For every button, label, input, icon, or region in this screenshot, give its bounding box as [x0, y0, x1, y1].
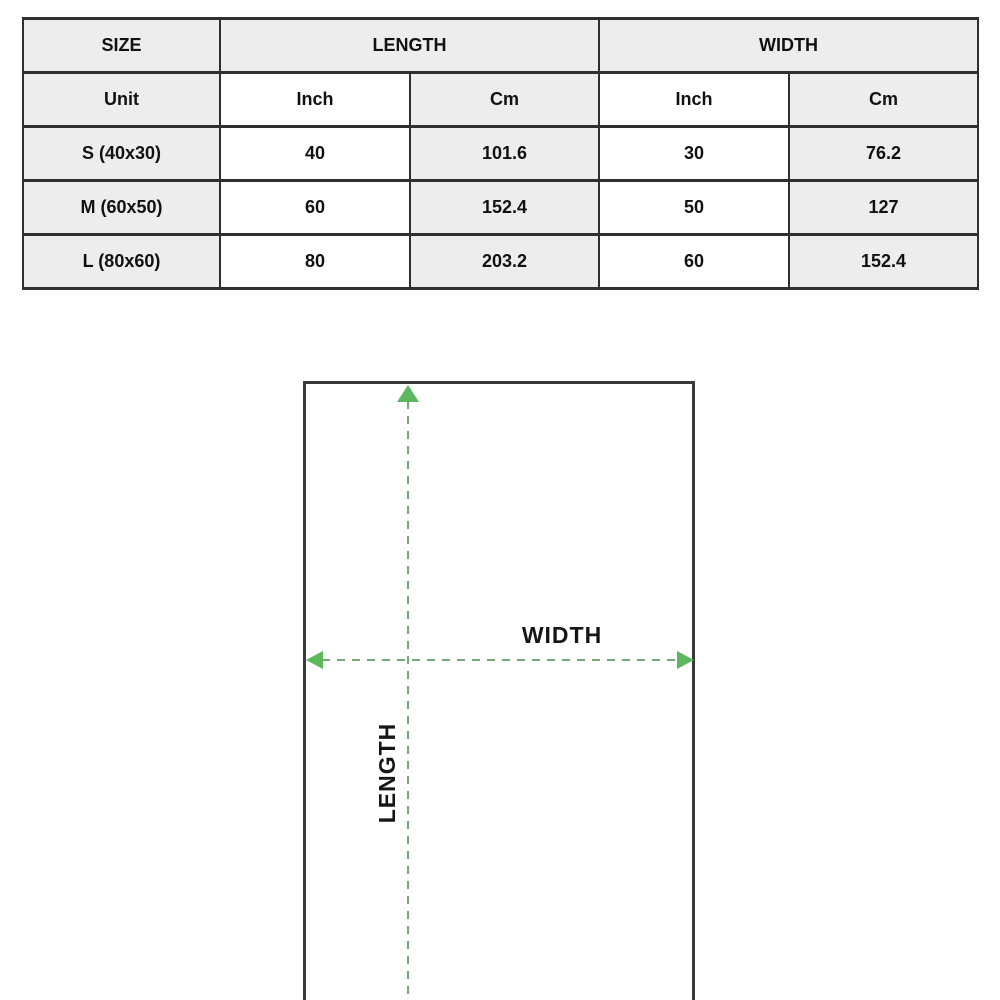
- length-cm-cell: 152.4: [410, 181, 599, 235]
- size-chart-page: SIZE LENGTH WIDTH Unit Inch Cm Inch Cm S…: [0, 0, 1000, 1000]
- size-cell: S (40x30): [23, 127, 220, 181]
- unit-row-label: Unit: [23, 73, 220, 127]
- width-dashed-line: [322, 659, 678, 661]
- length-cm-cell: 203.2: [410, 235, 599, 289]
- arrow-right-icon: [677, 651, 694, 669]
- table-unit-row: Unit Inch Cm Inch Cm: [23, 73, 978, 127]
- size-chart-table: SIZE LENGTH WIDTH Unit Inch Cm Inch Cm S…: [22, 17, 979, 290]
- size-cell: M (60x50): [23, 181, 220, 235]
- unit-width-inch: Inch: [599, 73, 789, 127]
- size-cell: L (80x60): [23, 235, 220, 289]
- length-inch-cell: 40: [220, 127, 410, 181]
- width-inch-cell: 50: [599, 181, 789, 235]
- length-inch-cell: 80: [220, 235, 410, 289]
- product-outline-rect: [303, 381, 695, 1000]
- arrow-left-icon: [306, 651, 323, 669]
- width-cm-cell: 76.2: [789, 127, 978, 181]
- header-length: LENGTH: [220, 19, 599, 73]
- length-dashed-line: [407, 401, 409, 1000]
- width-label: WIDTH: [482, 622, 642, 649]
- length-inch-cell: 60: [220, 181, 410, 235]
- unit-length-inch: Inch: [220, 73, 410, 127]
- width-cm-cell: 127: [789, 181, 978, 235]
- width-cm-cell: 152.4: [789, 235, 978, 289]
- unit-width-cm: Cm: [789, 73, 978, 127]
- length-label: LENGTH: [373, 703, 401, 843]
- table-row: S (40x30) 40 101.6 30 76.2: [23, 127, 978, 181]
- unit-length-cm: Cm: [410, 73, 599, 127]
- width-inch-cell: 30: [599, 127, 789, 181]
- header-width: WIDTH: [599, 19, 978, 73]
- table-header-row: SIZE LENGTH WIDTH: [23, 19, 978, 73]
- table-row: L (80x60) 80 203.2 60 152.4: [23, 235, 978, 289]
- arrow-up-icon: [397, 385, 419, 402]
- width-inch-cell: 60: [599, 235, 789, 289]
- header-size: SIZE: [23, 19, 220, 73]
- length-cm-cell: 101.6: [410, 127, 599, 181]
- table-row: M (60x50) 60 152.4 50 127: [23, 181, 978, 235]
